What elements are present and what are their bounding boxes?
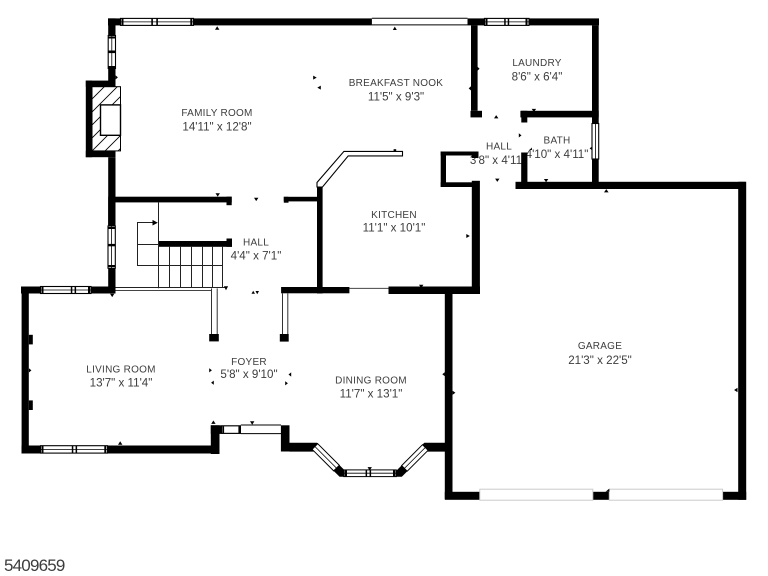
svg-text:8'6" x 6'4": 8'6" x 6'4"	[512, 70, 563, 83]
svg-text:11'5" x 9'3": 11'5" x 9'3"	[368, 90, 424, 103]
svg-text:14'11" x 12'8": 14'11" x 12'8"	[182, 120, 251, 133]
svg-text:FAMILY ROOM: FAMILY ROOM	[181, 108, 252, 119]
svg-text:BREAKFAST NOOK: BREAKFAST NOOK	[349, 78, 444, 89]
svg-text:11'7" x 13'1": 11'7" x 13'1"	[340, 387, 403, 400]
svg-text:GARAGE: GARAGE	[578, 341, 622, 352]
svg-text:BATH: BATH	[544, 135, 571, 146]
svg-text:LAUNDRY: LAUNDRY	[512, 58, 561, 69]
svg-text:11'1" x 10'1": 11'1" x 10'1"	[363, 222, 426, 235]
svg-text:4'4" x 7'1": 4'4" x 7'1"	[231, 249, 282, 262]
svg-text:5'8" x 9'10": 5'8" x 9'10"	[220, 368, 277, 381]
svg-text:HALL: HALL	[486, 142, 512, 153]
svg-text:HALL: HALL	[243, 237, 269, 248]
svg-text:DINING ROOM: DINING ROOM	[335, 375, 407, 386]
svg-text:4'10" x 4'11": 4'10" x 4'11"	[526, 148, 589, 161]
svg-text:LIVING ROOM: LIVING ROOM	[86, 365, 155, 376]
svg-text:5409659: 5409659	[4, 556, 65, 575]
svg-text:FOYER: FOYER	[231, 357, 267, 368]
svg-text:21'3" x 22'5": 21'3" x 22'5"	[568, 354, 632, 367]
svg-text:13'7" x 11'4": 13'7" x 11'4"	[90, 377, 153, 390]
svg-text:KITCHEN: KITCHEN	[371, 210, 417, 221]
